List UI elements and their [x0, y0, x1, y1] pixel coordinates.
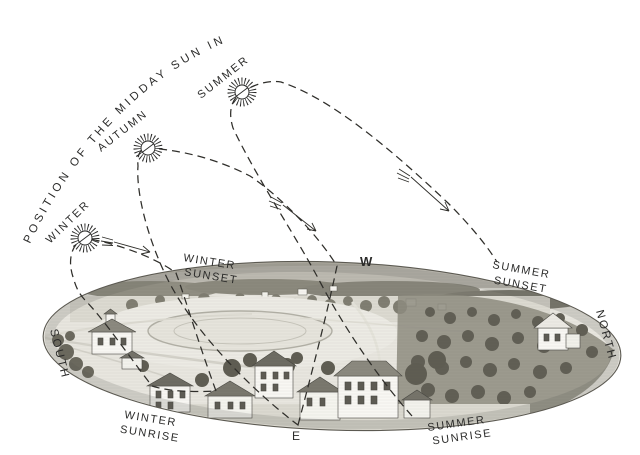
figure-title: POSITION OF THE MIDDAY SUN IN — [22, 34, 228, 246]
winter-sun-icon — [74, 227, 96, 249]
winter-sunrise-label: WINTER SUNRISE — [119, 409, 183, 445]
compass-east-label: E — [292, 429, 301, 443]
midday-sun-position-diagram: POSITION OF THE MIDDAY SUN IN WINTER AUT… — [0, 0, 640, 455]
diagram-canvas: POSITION OF THE MIDDAY SUN IN WINTER AUT… — [0, 0, 640, 455]
winter-direction-arrow-icon — [101, 237, 150, 254]
autumn-sun-icon — [137, 137, 159, 159]
summer-direction-arrow-icon — [397, 169, 449, 211]
compass-west-label: W — [360, 254, 373, 269]
sun-direction-arrows — [101, 169, 449, 254]
autumn-direction-arrow-icon — [269, 197, 316, 231]
